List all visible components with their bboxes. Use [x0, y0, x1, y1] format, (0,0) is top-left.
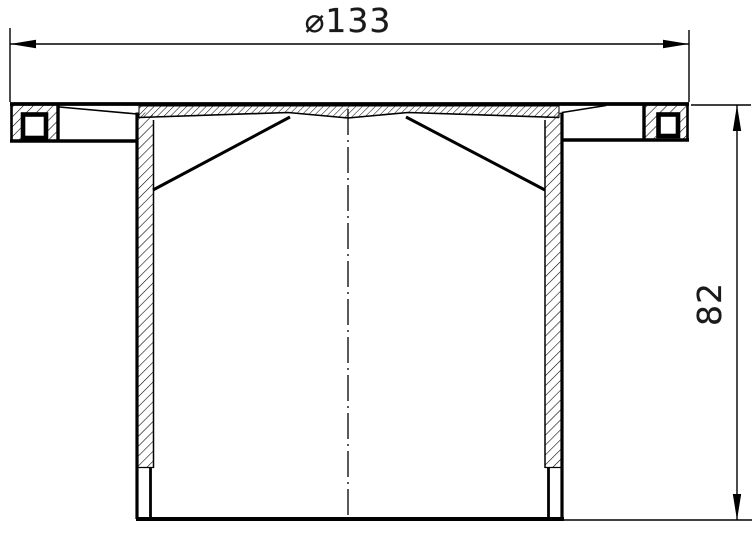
right-funnel-diagonal	[406, 117, 545, 190]
right-wall-hatch	[546, 113, 562, 469]
arrowhead-up-icon	[733, 105, 741, 131]
height-dimension-label: 82	[692, 244, 728, 364]
left-funnel-diagonal	[153, 117, 290, 190]
left-rim-channel-hole	[23, 115, 46, 139]
diameter-dimension-label: ⌀133	[248, 2, 448, 40]
arrowhead-left-icon	[10, 40, 36, 48]
right-rim-channel-hole	[659, 115, 679, 137]
right-skirt-line	[562, 106, 606, 113]
left-wall-hatch	[138, 113, 154, 469]
arrowhead-right-icon	[663, 40, 689, 48]
technical-drawing-canvas: ⌀133 82	[0, 0, 756, 536]
arrowhead-down-icon	[733, 494, 741, 520]
left-skirt-line	[60, 107, 138, 114]
part-section	[10, 104, 689, 519]
drawing-svg	[0, 0, 756, 536]
